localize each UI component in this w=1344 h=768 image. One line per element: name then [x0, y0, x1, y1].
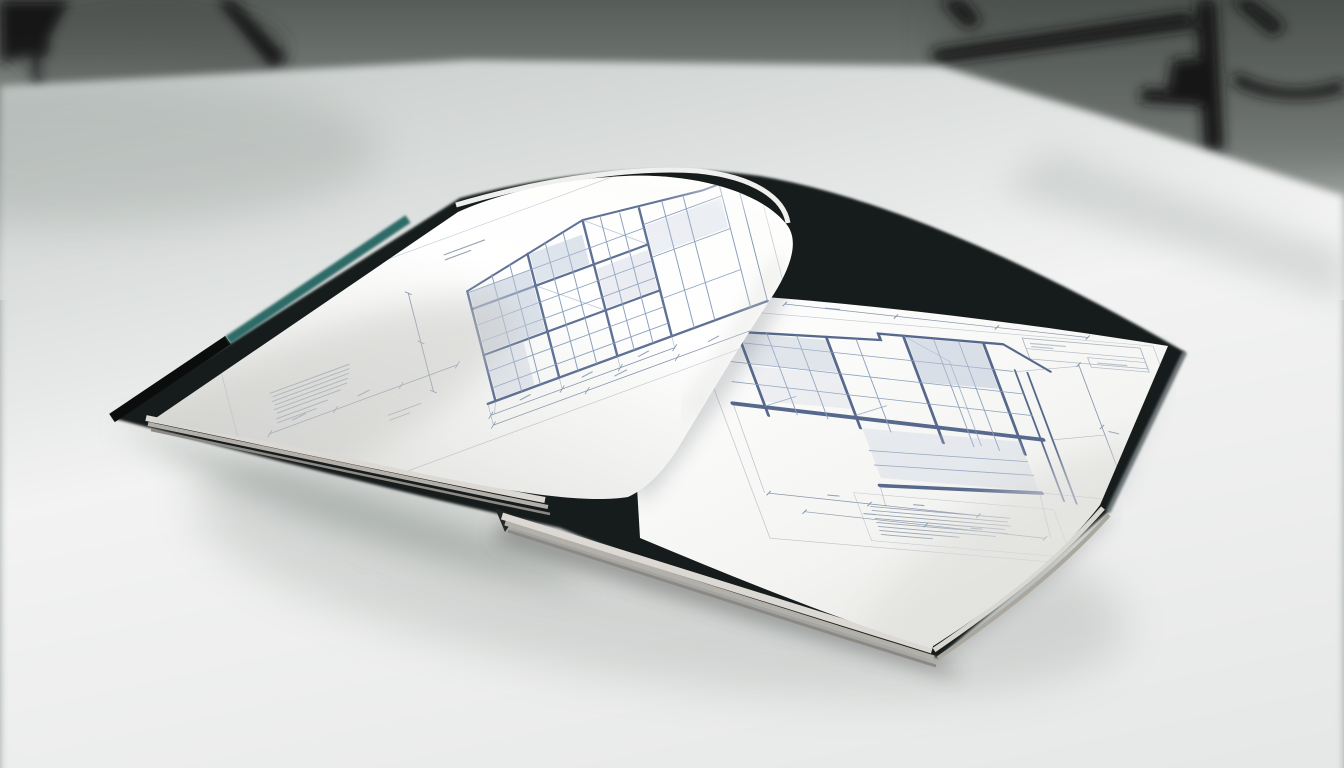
- scene-canvas: [0, 0, 1344, 768]
- photo-scene: [0, 0, 1344, 768]
